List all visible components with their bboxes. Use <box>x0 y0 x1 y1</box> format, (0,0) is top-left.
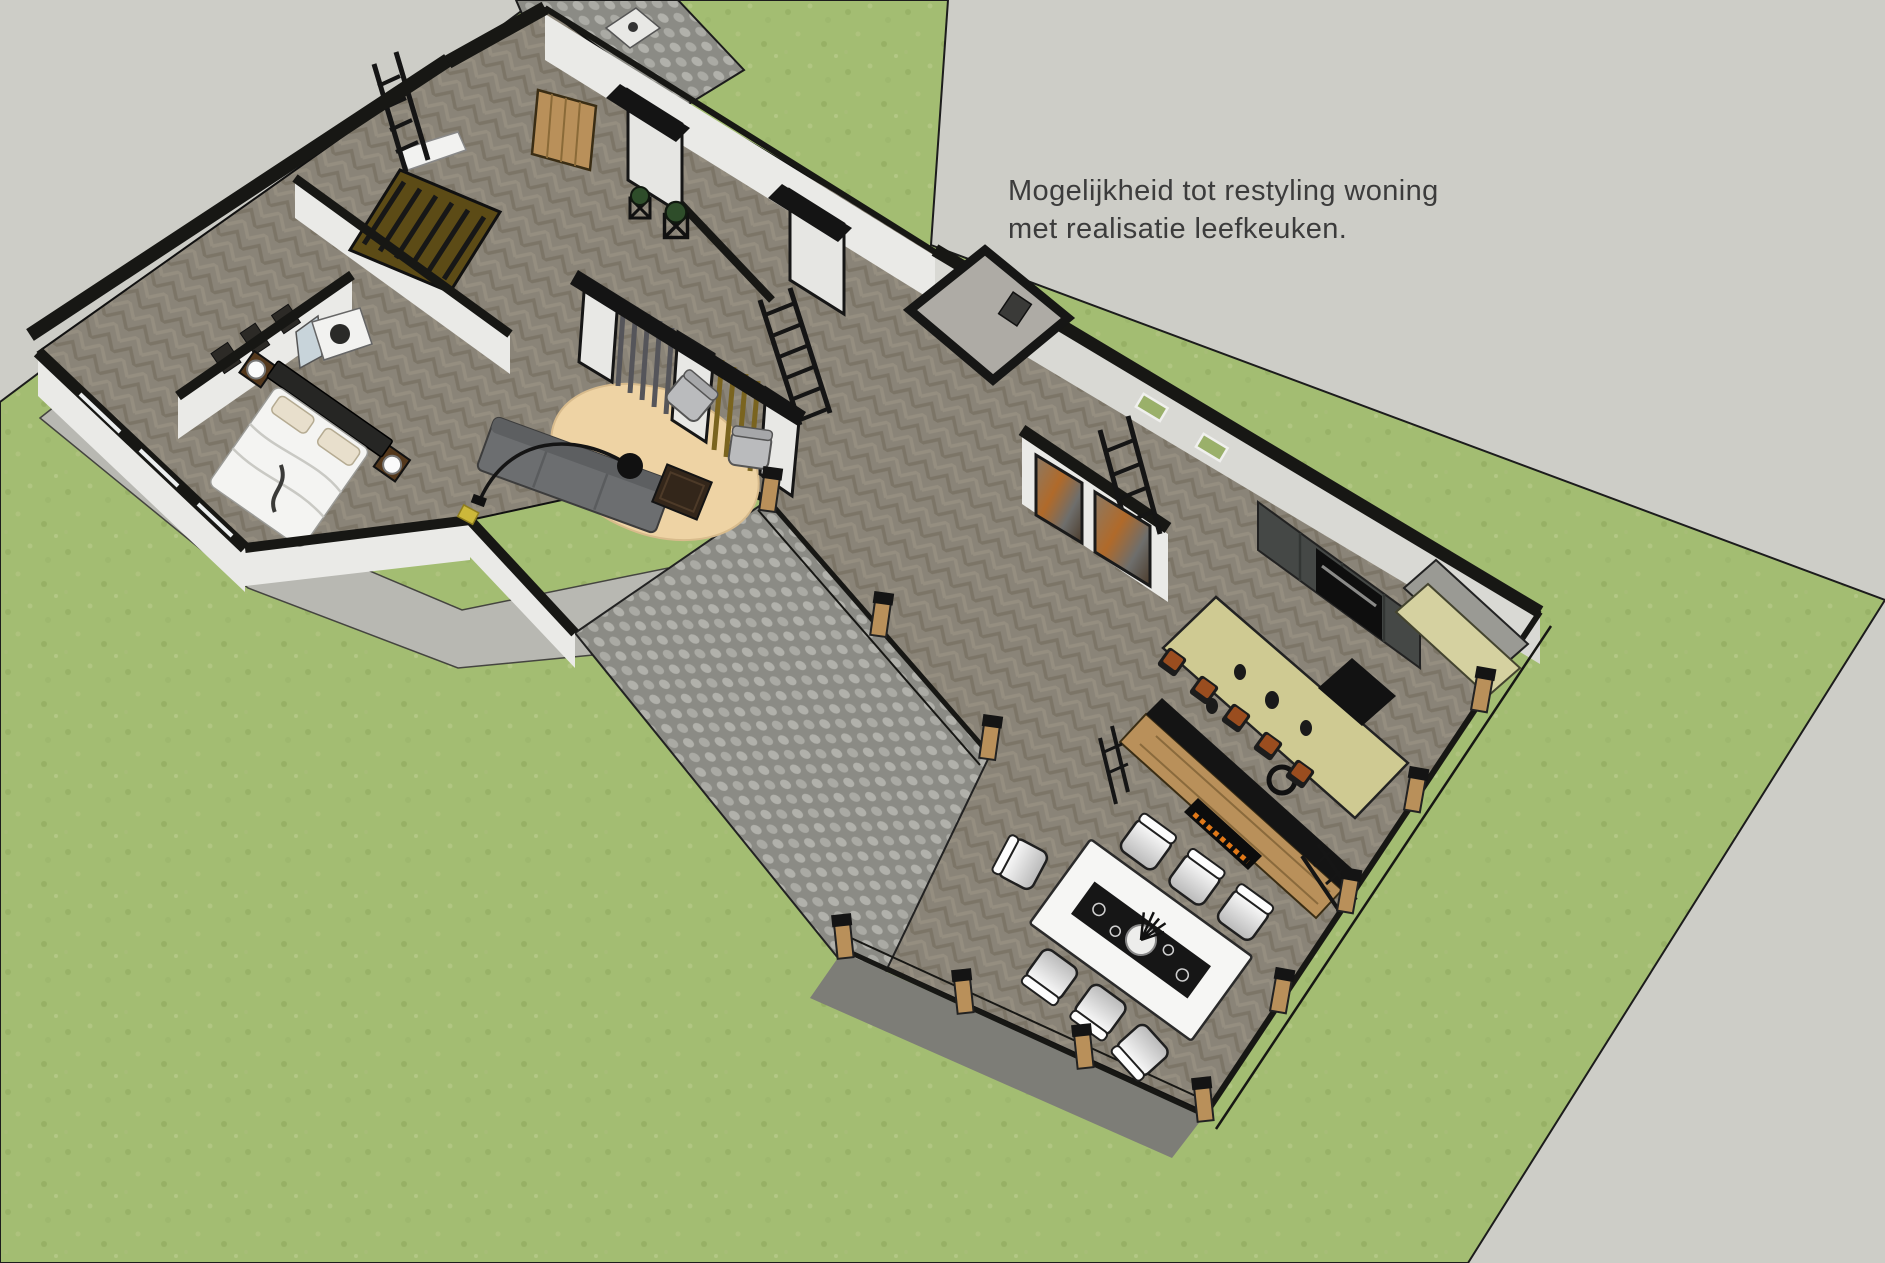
floorplan-render: Mogelijkheid tot restyling woning met re… <box>0 0 1885 1263</box>
annotation-line-2: met realisatie leefkeuken. <box>1008 213 1347 245</box>
floorplan-scene: Mogelijkheid tot restyling woning met re… <box>0 0 1885 1263</box>
decor-bottle <box>1234 664 1246 680</box>
annotation-line-1: Mogelijkheid tot restyling woning <box>1008 175 1439 207</box>
decor-bottle <box>1265 691 1279 709</box>
armchair <box>728 425 773 469</box>
decor-bottle <box>1300 720 1312 736</box>
